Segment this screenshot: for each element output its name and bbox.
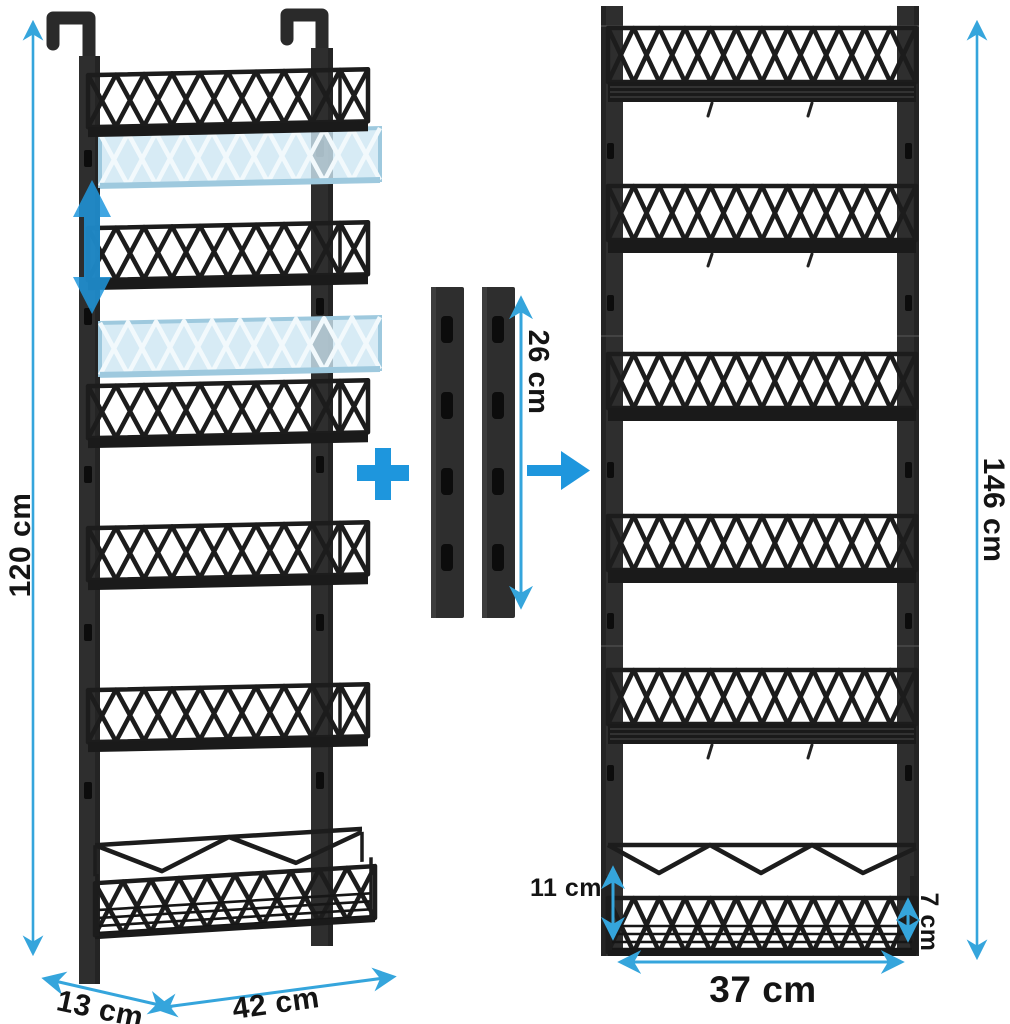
right-rack-baskets — [605, 28, 917, 954]
dimension-left-width: 42 cm — [158, 977, 392, 1024]
extension-rail — [431, 287, 464, 618]
dimension-rail-height: 26 cm — [521, 300, 554, 605]
ghost-basket — [100, 317, 380, 375]
right-rack-rail — [601, 6, 623, 956]
dimension-right-height: 146 cm — [977, 24, 1010, 956]
plus-icon — [357, 448, 409, 500]
right-rack-bottom-tier — [605, 845, 917, 954]
right-rack-rail — [897, 6, 919, 956]
dimension-left-height: 120 cm — [4, 24, 37, 952]
dimension-bottom-gap: 11 cm — [530, 870, 613, 936]
rail-height-label: 26 cm — [522, 330, 554, 415]
diagram-canvas: 120 cm 13 cm 42 cm 26 cm — [0, 0, 1010, 1024]
left-width-label: 42 cm — [230, 981, 321, 1024]
arrow-right-icon — [527, 451, 590, 490]
left-rack-deep-basket — [95, 857, 375, 936]
right-rack-basket — [608, 186, 916, 266]
basket-depth-label: 7 cm — [915, 893, 943, 952]
bottom-gap-label: 11 cm — [530, 874, 602, 902]
right-rack-basket — [608, 516, 916, 583]
left-height-label: 120 cm — [4, 493, 37, 598]
product-dimension-diagram: 120 cm 13 cm 42 cm 26 cm — [0, 0, 1010, 1024]
right-rack-basket — [608, 354, 916, 421]
right-width-label: 37 cm — [709, 969, 816, 1010]
ghost-basket — [100, 128, 380, 186]
right-rack-basket — [608, 670, 916, 758]
dimension-right-width: 37 cm — [622, 962, 900, 1010]
right-height-label: 146 cm — [977, 458, 1010, 563]
zigzag-guard — [608, 845, 916, 873]
extension-rails — [431, 287, 515, 618]
left-rack — [53, 15, 380, 984]
right-rack-basket — [608, 28, 916, 116]
right-rack — [601, 6, 919, 956]
dimension-left-depth: 13 cm — [46, 979, 168, 1024]
extension-rail — [482, 287, 515, 618]
